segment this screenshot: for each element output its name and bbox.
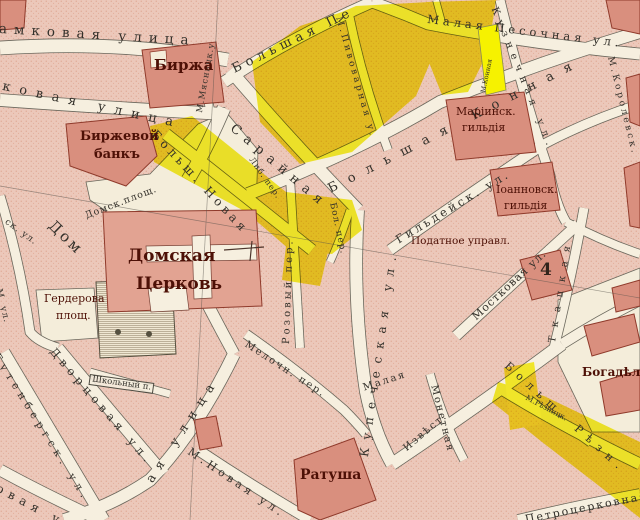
place-label-ioannovsk-gildia: гильдія	[504, 200, 547, 211]
street-label-sk-ul-fragment: ск. ул.	[3, 218, 38, 247]
street-label-m-ul-fragment: М. ул.	[0, 288, 10, 324]
place-label-birzha: Биржа	[154, 58, 213, 73]
street-label-rozovy-per: Розовый пер.	[282, 238, 296, 344]
place-label-mariinsk: Маріинск.	[456, 106, 516, 117]
labels-overlay: Замковая улица М.Мясницк.у ковая улица Б…	[0, 0, 640, 520]
place-label-block-number-4: 4	[540, 262, 552, 279]
street-label-m-novaya: М.Новая ул.	[186, 446, 288, 519]
place-label-birzhevoy: Биржевой	[80, 130, 159, 143]
street-label-domsk-ploshchad: Домск.площ.	[84, 185, 158, 221]
place-label-domskaya: Домская	[128, 248, 215, 265]
street-label-dvortsovaya: Дворцовая ул.	[47, 346, 155, 468]
place-label-tserkov: Церковь	[136, 276, 222, 293]
street-label-malaya-pesochnaya: Малая Песочная ул.	[427, 14, 624, 49]
street-label-mostkovaya: Мостковая ул.	[470, 248, 548, 322]
street-label-bolshaya-pesochnaya: Большая Пе	[230, 5, 356, 75]
street-label-bol-per: Бол. пер.	[327, 202, 347, 255]
street-label-m-korolevskaya: М.Королевск.	[605, 56, 638, 156]
street-label-melochny-per: Мелочн. пер.	[243, 340, 328, 400]
street-label-petrotserkovnaya: Петроцерковная	[524, 490, 640, 520]
street-label-m-myasnitskaya: М.Мясницк.у	[196, 42, 217, 113]
place-label-ratusha: Ратуша	[300, 468, 361, 482]
street-label-tkatskaya: Ткацкая	[548, 236, 575, 343]
place-label-ioannovsk: Іоанновск.	[496, 184, 558, 195]
place-label-podatnoe: Податное управл.	[411, 236, 510, 247]
place-label-gerderova: Гердерова	[44, 293, 105, 304]
place-label-mariinsk-gildia: гильдія	[462, 122, 505, 133]
place-label-ploshch: площ.	[56, 310, 91, 321]
street-label-bolshaya-novaya: Больш. Новая	[149, 128, 251, 236]
place-label-bogadelnya: Богадѣльня	[582, 366, 640, 378]
place-label-bank: банкъ	[94, 148, 140, 161]
street-label-kovaya-ulitsa: ковая улица	[1, 80, 183, 131]
street-label-m-konnaya: М.Конная	[480, 58, 493, 93]
street-label-m-pivovarnaya: М.Пивоварная у.	[333, 16, 376, 139]
street-label-zamkovaya: Замковая улица	[0, 22, 196, 48]
street-label-shkolny-per: Школьный п.	[89, 374, 155, 393]
city-map: Замковая улица М.Мясницк.у ковая улица Б…	[0, 0, 640, 520]
street-label-dom-fragment: Дом	[46, 218, 87, 258]
street-label-kupecheskaya: Купеческая ул.	[358, 248, 399, 457]
